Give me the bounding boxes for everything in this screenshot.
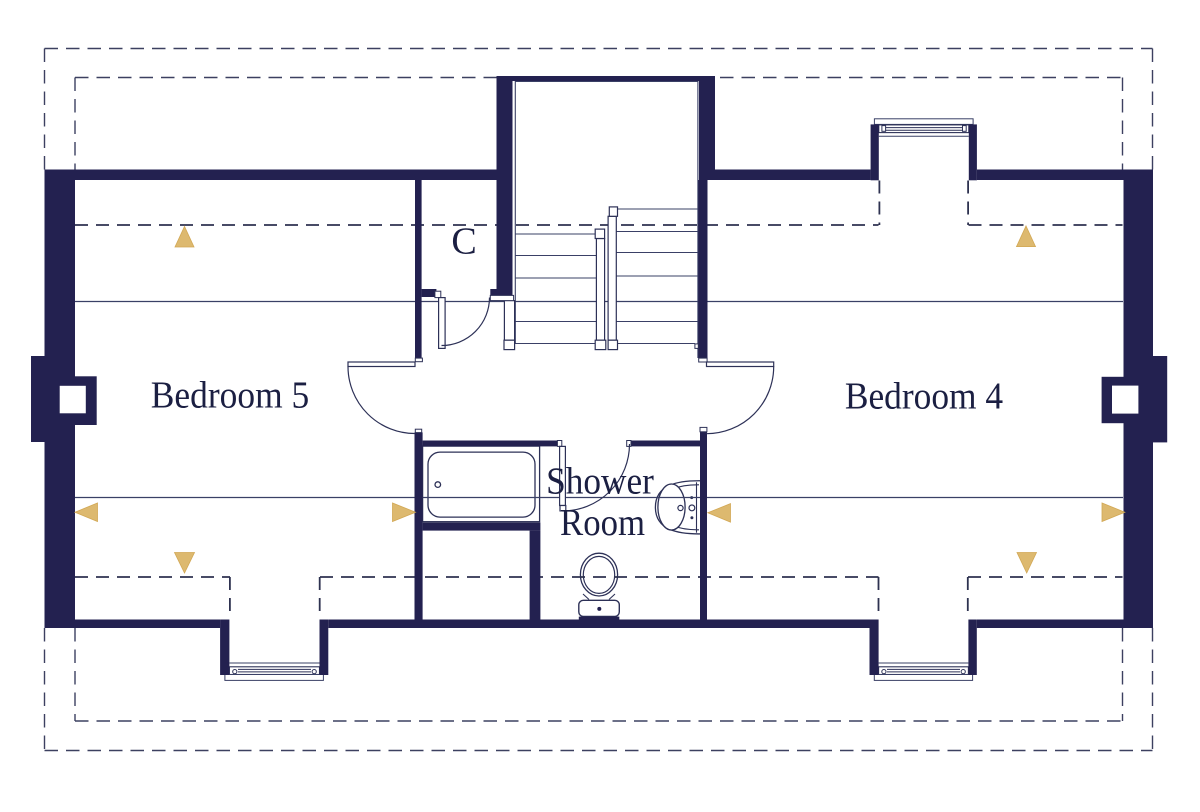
- svg-text:Shower: Shower: [546, 461, 654, 503]
- svg-text:Bedroom 4: Bedroom 4: [845, 375, 1003, 417]
- svg-text:Bedroom 5: Bedroom 5: [151, 375, 309, 417]
- svg-text:C: C: [451, 221, 476, 263]
- svg-text:Room: Room: [560, 502, 645, 544]
